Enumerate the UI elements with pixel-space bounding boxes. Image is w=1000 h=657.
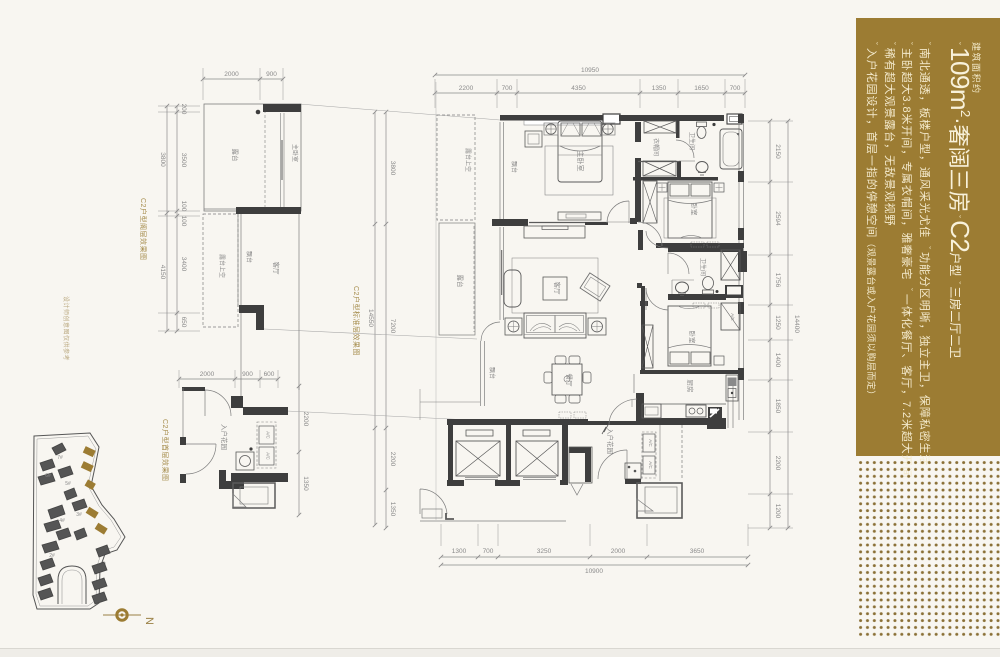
svg-text:1350: 1350 bbox=[652, 85, 667, 92]
svg-text:1650: 1650 bbox=[694, 85, 709, 92]
svg-text:2000: 2000 bbox=[611, 548, 626, 555]
svg-text:露台: 露台 bbox=[231, 149, 240, 162]
svg-text:主卧室: 主卧室 bbox=[291, 144, 299, 162]
svg-text:900: 900 bbox=[242, 371, 253, 378]
svg-text:卧室: 卧室 bbox=[690, 203, 699, 217]
svg-text:入户花园: 入户花园 bbox=[606, 428, 615, 454]
svg-text:14400: 14400 bbox=[793, 315, 800, 333]
svg-text:650: 650 bbox=[180, 317, 187, 328]
svg-text:入户花园: 入户花园 bbox=[220, 424, 229, 450]
svg-text:2200: 2200 bbox=[302, 412, 309, 427]
svg-text:1350: 1350 bbox=[302, 476, 309, 491]
svg-text:2200: 2200 bbox=[389, 452, 396, 467]
svg-text:6#: 6# bbox=[45, 473, 51, 479]
svg-text:3650: 3650 bbox=[690, 548, 705, 555]
svg-text:A/C: A/C bbox=[266, 431, 271, 439]
svg-text:客厅: 客厅 bbox=[272, 262, 281, 276]
svg-text:4350: 4350 bbox=[571, 85, 586, 92]
svg-text:1350: 1350 bbox=[389, 502, 396, 517]
svg-text:200: 200 bbox=[180, 104, 187, 115]
svg-text:卧室: 卧室 bbox=[688, 331, 697, 345]
svg-text:700: 700 bbox=[502, 85, 513, 92]
svg-text:1300: 1300 bbox=[452, 548, 467, 555]
svg-text:14550: 14550 bbox=[367, 309, 374, 327]
svg-text:3#: 3# bbox=[76, 512, 82, 518]
svg-text:主卧室: 主卧室 bbox=[576, 151, 585, 172]
svg-text:1850: 1850 bbox=[774, 399, 781, 414]
svg-text:2000: 2000 bbox=[224, 71, 239, 78]
svg-text:1200: 1200 bbox=[774, 504, 781, 519]
svg-text:5#: 5# bbox=[65, 481, 71, 487]
svg-text:1400: 1400 bbox=[774, 353, 781, 368]
svg-text:厨房: 厨房 bbox=[686, 380, 695, 393]
svg-text:2200: 2200 bbox=[459, 85, 474, 92]
svg-text:4#: 4# bbox=[59, 518, 65, 524]
svg-text:10900: 10900 bbox=[585, 568, 603, 575]
svg-text:700: 700 bbox=[483, 548, 494, 555]
svg-text:7200: 7200 bbox=[389, 319, 396, 334]
svg-text:600: 600 bbox=[264, 371, 275, 378]
svg-text:露台上空: 露台上空 bbox=[218, 254, 226, 278]
svg-text:A/C: A/C bbox=[266, 452, 271, 460]
svg-text:3250: 3250 bbox=[537, 548, 552, 555]
svg-text:卫生间: 卫生间 bbox=[699, 258, 707, 276]
svg-text:飘台: 飘台 bbox=[488, 367, 496, 379]
svg-text:2594: 2594 bbox=[774, 211, 781, 226]
svg-text:4150: 4150 bbox=[159, 265, 166, 280]
svg-text:3500: 3500 bbox=[180, 153, 187, 168]
svg-text:900: 900 bbox=[266, 71, 277, 78]
svg-text:露台: 露台 bbox=[456, 275, 465, 288]
svg-text:露台上空: 露台上空 bbox=[464, 148, 472, 172]
svg-text:7#: 7# bbox=[57, 455, 63, 461]
svg-text:2150: 2150 bbox=[774, 144, 781, 159]
svg-text:卫生间: 卫生间 bbox=[688, 132, 696, 150]
svg-text:衣帽间: 衣帽间 bbox=[652, 138, 660, 156]
svg-text:100: 100 bbox=[180, 216, 187, 227]
svg-text:1250: 1250 bbox=[774, 315, 781, 330]
svg-text:飘台: 飘台 bbox=[510, 161, 518, 173]
svg-text:700: 700 bbox=[730, 85, 741, 92]
svg-text:飘台: 飘台 bbox=[245, 251, 253, 263]
svg-text:A/C: A/C bbox=[730, 313, 735, 321]
svg-text:3800: 3800 bbox=[389, 161, 396, 176]
svg-text:3400: 3400 bbox=[180, 257, 187, 272]
svg-text:100: 100 bbox=[180, 201, 187, 212]
svg-text:A/C: A/C bbox=[648, 439, 653, 447]
svg-text:2000: 2000 bbox=[200, 371, 215, 378]
svg-text:A/C: A/C bbox=[648, 461, 653, 469]
svg-text:1756: 1756 bbox=[774, 273, 781, 288]
svg-text:10950: 10950 bbox=[581, 67, 599, 74]
svg-text:2200: 2200 bbox=[774, 456, 781, 471]
svg-text:N: N bbox=[143, 617, 155, 625]
svg-text:客厅: 客厅 bbox=[553, 282, 562, 296]
svg-text:3800: 3800 bbox=[159, 152, 166, 167]
